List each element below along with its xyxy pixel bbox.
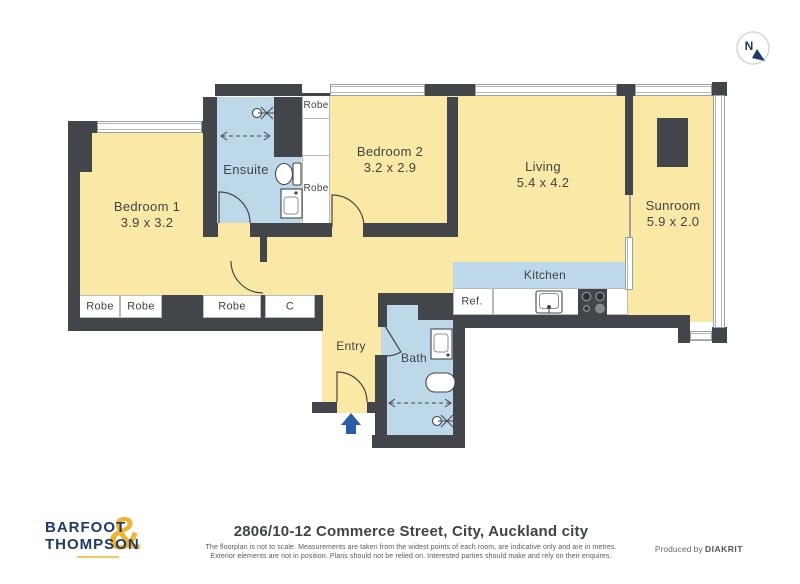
living-label: Living 5.4 x 4.2 (517, 159, 570, 191)
room-name: Bedroom 1 (114, 199, 180, 215)
shower-tap-icon (438, 415, 456, 427)
disclaimer-line-2: Exterior elements are not in position. P… (11, 553, 800, 560)
burner-icon (584, 306, 590, 312)
room-name: Living (517, 159, 570, 175)
cupboard-label: C (286, 301, 294, 314)
produced-by-text: Produced by (655, 544, 703, 554)
room-size: 5.9 x 2.0 (646, 214, 701, 230)
room-name: Sunroom (646, 198, 701, 214)
burner-icon (596, 292, 604, 300)
produced-by-credit: Produced by DIAKRIT (655, 544, 743, 554)
bedroom2-door-arc (332, 195, 364, 227)
fixtures-layer (0, 0, 800, 584)
room-name: Ensuite (223, 162, 268, 178)
listing-address: 2806/10-12 Commerce Street, City, Auckla… (11, 523, 800, 540)
robe-label: Robe (86, 301, 114, 314)
sunroom-label: Sunroom 5.9 x 2.0 (646, 198, 701, 230)
room-name: Bedroom 2 (357, 144, 423, 160)
burner-icon (596, 304, 604, 312)
robe-label: Robe (303, 183, 328, 195)
burner-icon (582, 292, 590, 300)
robe-label: Robe (127, 301, 155, 314)
bath-label: Bath (401, 351, 427, 365)
bedroom1-label: Bedroom 1 3.9 x 3.2 (114, 199, 180, 231)
entry-label: Entry (336, 339, 366, 353)
room-name: Kitchen (524, 268, 566, 282)
bedroom1-door-arc (231, 261, 263, 293)
ensuite-label: Ensuite (223, 162, 268, 178)
robe-label: Robe (303, 100, 328, 112)
shower-tap-icon (258, 107, 276, 119)
room-size: 5.4 x 4.2 (517, 175, 570, 191)
producer-name: DIAKRIT (705, 544, 743, 554)
room-size: 3.2 x 2.9 (357, 160, 423, 176)
kitchen-label: Kitchen (524, 268, 566, 282)
room-size: 3.9 x 3.2 (114, 215, 180, 231)
bedroom2-label: Bedroom 2 3.2 x 2.9 (357, 144, 423, 176)
robe-label: Robe (218, 301, 246, 314)
entry-arrow-icon (341, 413, 361, 434)
entry-door-arc (337, 372, 367, 402)
compass-north-label: N (745, 39, 754, 53)
bathtub-icon (426, 373, 455, 392)
bath-door-arc (385, 326, 401, 356)
floorplan-canvas: Bedroom 1 3.9 x 3.2 Ensuite Bedroom 2 3.… (0, 0, 800, 584)
ensuite-tap-icon (294, 191, 297, 194)
toilet-cistern-icon (293, 163, 301, 185)
toilet-icon (276, 164, 293, 185)
ensuite-door-arc (219, 192, 250, 223)
fridge-label: Ref. (461, 296, 482, 309)
bath-tap-icon (446, 353, 449, 356)
